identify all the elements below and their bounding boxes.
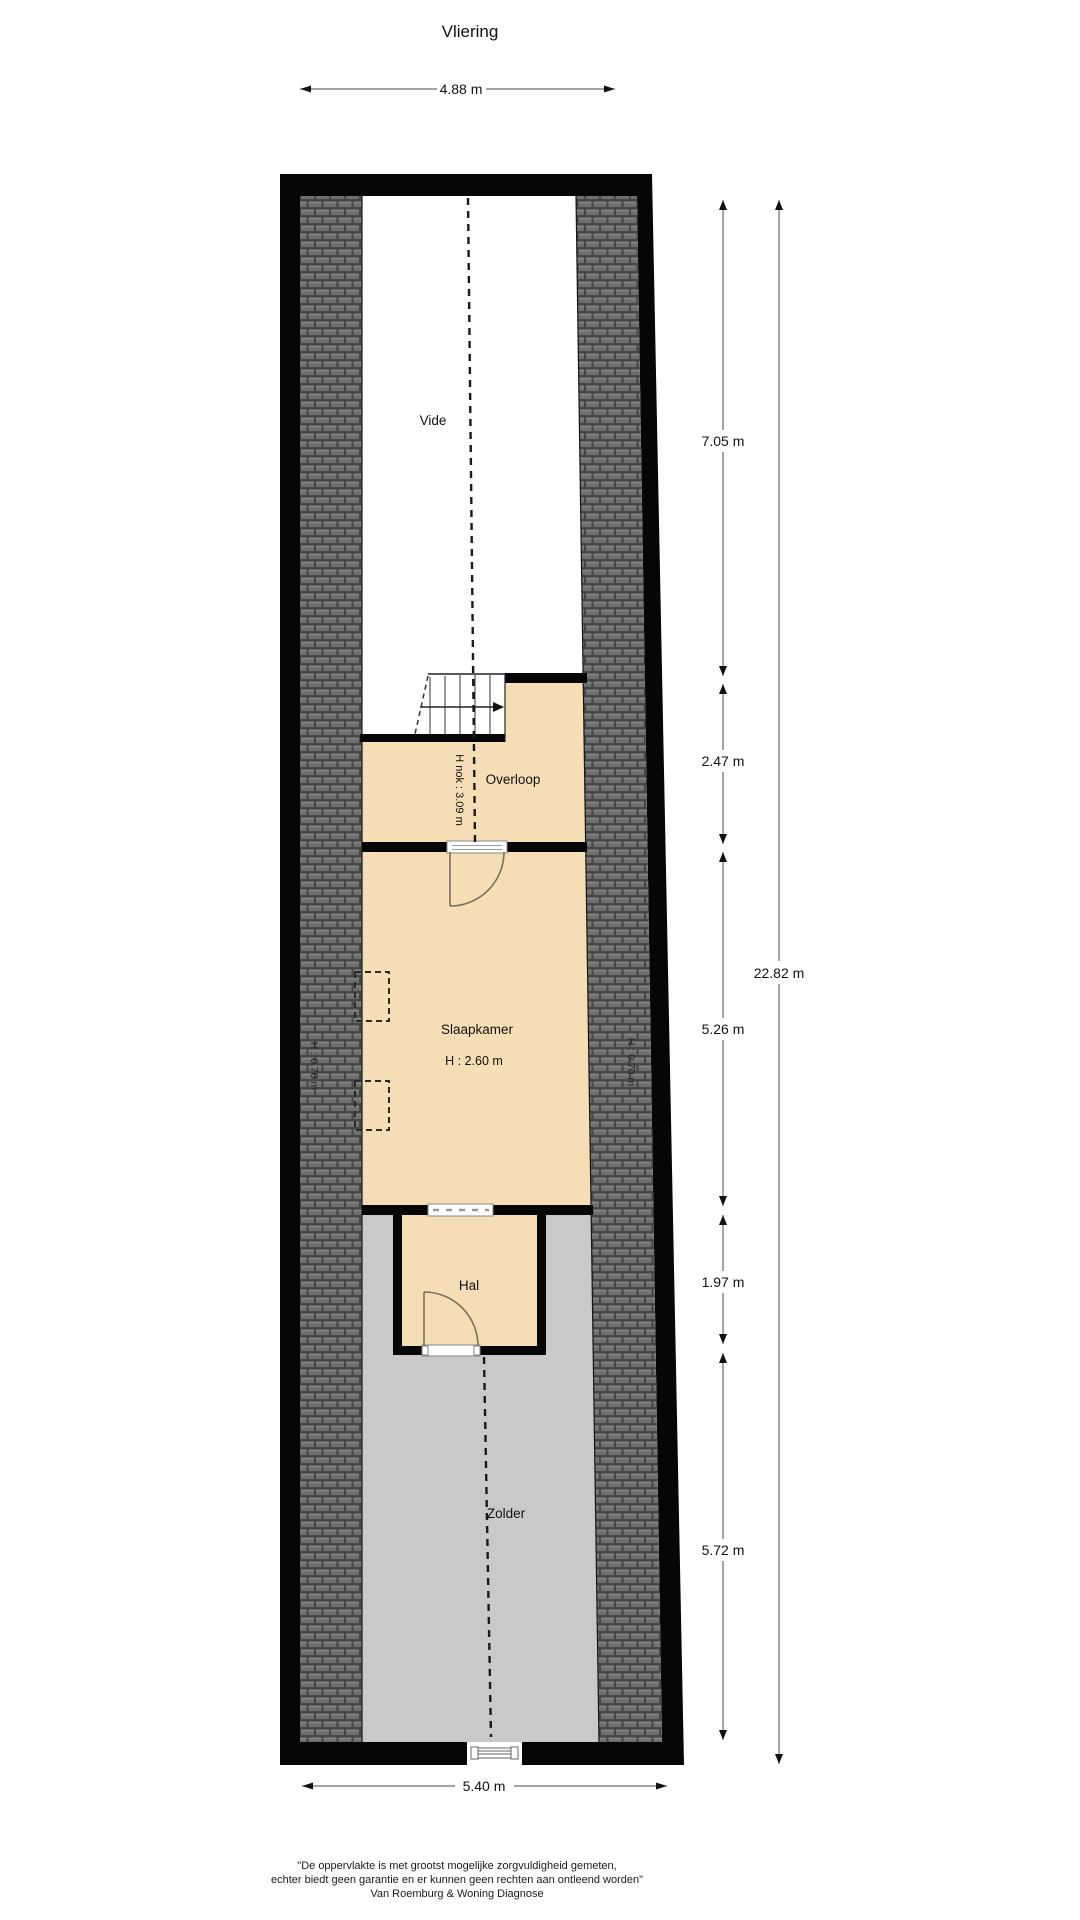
arrow-up-icon (719, 200, 727, 210)
wall-overloop-top (505, 673, 587, 683)
arrow-left-icon (300, 86, 311, 93)
arrow-down-icon (719, 834, 727, 844)
wall-hal-right (537, 1215, 546, 1355)
stairwell-floor (360, 674, 505, 742)
footer-line-2: echter biedt geen garantie en er kunnen … (271, 1874, 643, 1886)
dim-segment-hal: 1.97 m (702, 1274, 745, 1290)
threshold-hal-door (422, 1345, 480, 1356)
ridge-height-label: H nok : 3.09 m (453, 754, 465, 826)
footer-line-1: "De oppervlakte is met grootst mogelijke… (297, 1860, 616, 1872)
dim-segment-chain: 7.05 m 2.47 m 5.26 m 1.97 m 5.72 m (702, 200, 745, 1740)
window-endcap (511, 1747, 518, 1759)
threshold-endcap (474, 1346, 480, 1355)
room-overloop-label: Overloop (486, 772, 541, 787)
arrow-down-icon (719, 1334, 727, 1344)
wall-hal-bottom-right (480, 1346, 546, 1355)
wall-slaapkamer-bottom-right (493, 1205, 593, 1215)
room-hal-label: Hal (459, 1278, 479, 1293)
arrow-down-icon (775, 1754, 783, 1764)
arrow-up-icon (719, 852, 727, 862)
arrow-up-icon (719, 684, 727, 694)
bottom-window-frame (472, 1748, 517, 1758)
wall-stairs-bottom (360, 734, 505, 742)
dim-top-width: 4.88 m (440, 81, 483, 97)
wall-overloop-bottom-right (505, 842, 587, 852)
roof-hatch-left (300, 196, 362, 1742)
arrow-up-icon (719, 1215, 727, 1225)
arrow-right-icon (656, 1783, 667, 1790)
dim-total-height-label: 22.82 m (754, 965, 805, 981)
room-zolder-label: Zolder (487, 1506, 526, 1521)
footer-disclaimer: "De oppervlakte is met grootst mogelijke… (271, 1860, 643, 1900)
page-title: Vliering (442, 22, 499, 41)
arrow-up-icon (719, 1353, 727, 1363)
wall-slaapkamer-bottom-left (362, 1205, 428, 1215)
arrow-up-icon (775, 200, 783, 210)
room-vide-label: Vide (420, 413, 447, 428)
knee-wall-height-left: H : 0.70 m (308, 1042, 320, 1091)
room-slaapkamer-label: Slaapkamer (441, 1022, 514, 1037)
floor-plan (280, 174, 684, 1765)
arrow-down-icon (719, 1730, 727, 1740)
arrow-right-icon (604, 86, 615, 93)
threshold-overloop-door (447, 841, 507, 853)
dim-segment-vide: 7.05 m (702, 433, 745, 449)
dim-segment-zolder: 5.72 m (702, 1542, 745, 1558)
arrow-down-icon (719, 666, 727, 676)
dim-segment-slaapkamer: 5.26 m (702, 1021, 745, 1037)
threshold-endcap (422, 1346, 428, 1355)
arrow-down-icon (719, 1196, 727, 1206)
wall-hal-left (393, 1215, 402, 1355)
knee-wall-height-right: H : 0.70 m (625, 1038, 637, 1087)
dim-bottom-width: 5.40 m (463, 1778, 506, 1794)
dim-segment-overloop: 2.47 m (702, 753, 745, 769)
slaapkamer-height-label: H : 2.60 m (445, 1054, 503, 1068)
arrow-left-icon (302, 1783, 313, 1790)
wall-hal-bottom-left (393, 1346, 423, 1355)
dim-total-height: 22.82 m (754, 200, 805, 1764)
floor-plan-canvas: 4.88 m 5.40 m (0, 0, 1080, 1920)
wall-overloop-bottom-left (362, 842, 450, 852)
footer-line-3: Van Roemburg & Woning Diagnose (370, 1888, 543, 1900)
window-endcap (471, 1747, 478, 1759)
